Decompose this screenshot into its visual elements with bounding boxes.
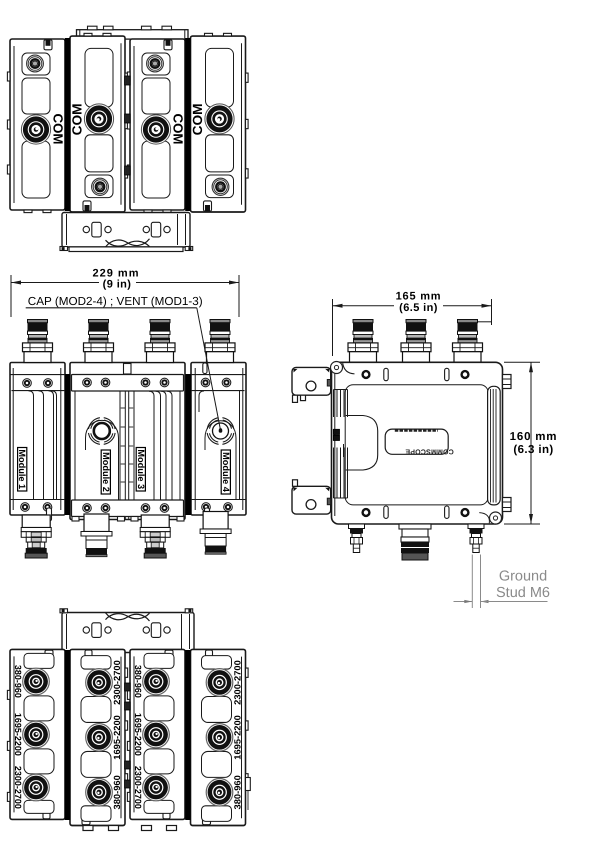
svg-text:COM: COM [51,113,66,144]
svg-text:(6.3 in): (6.3 in) [513,444,553,456]
svg-text:COMMSCOPE: COMMSCOPE [405,448,454,455]
svg-text:380-960: 380-960 [133,665,143,698]
svg-text:Ground: Ground [499,569,547,585]
svg-text:1695-2200: 1695-2200 [133,713,143,756]
svg-text:Module 1: Module 1 [17,449,27,489]
svg-text:2300-2700: 2300-2700 [133,766,143,809]
svg-text:1695-2200: 1695-2200 [233,715,243,760]
svg-text:2300-2700: 2300-2700 [233,660,243,705]
svg-text:(6.5 in): (6.5 in) [399,302,438,314]
svg-text:Module 3: Module 3 [136,449,146,489]
svg-text:380-960: 380-960 [112,775,122,809]
svg-text:380-960: 380-960 [13,665,23,698]
svg-text:CAP (MOD2-4) ; VENT (MOD1-3): CAP (MOD2-4) ; VENT (MOD1-3) [28,295,203,308]
svg-text:165 mm: 165 mm [396,291,442,303]
svg-text:2300-2700: 2300-2700 [13,766,23,809]
svg-text:COM: COM [171,113,186,144]
svg-text:(9 in): (9 in) [103,279,132,291]
svg-text:1695-2200: 1695-2200 [112,715,122,760]
svg-text:Module 2: Module 2 [101,452,111,492]
svg-text:2300-2700: 2300-2700 [112,660,122,705]
svg-text:Stud M6: Stud M6 [496,585,550,601]
svg-text:380-960: 380-960 [233,775,243,809]
svg-text:Module 4: Module 4 [221,452,231,493]
svg-text:160 mm: 160 mm [510,431,558,443]
svg-text:1695-2200: 1695-2200 [13,713,23,756]
svg-text:COM: COM [190,103,205,135]
svg-text:COM: COM [70,103,85,135]
